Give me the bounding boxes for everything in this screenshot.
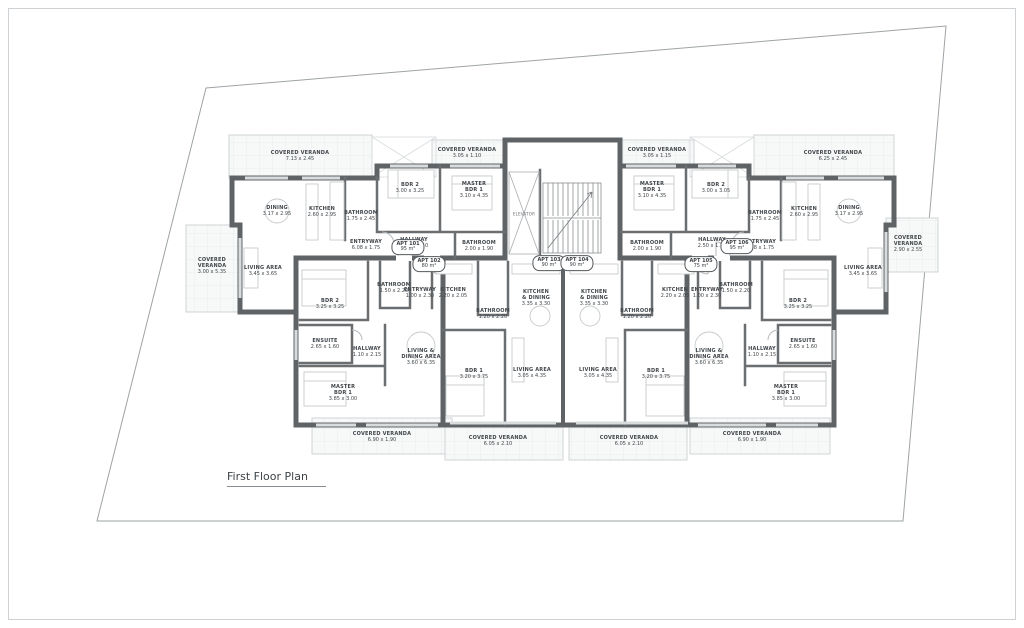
room-label: KITCHEN2.20 x 2.05 (661, 287, 689, 299)
room-label: MASTER BDR 13.10 x 4.35 (460, 181, 488, 199)
room-label: COVERED VERANDA6.05 x 2.10 (469, 435, 527, 447)
room-label: COVERED VERANDA6.90 x 1.90 (353, 431, 411, 443)
room-label: COVERED VERANDA7.13 x 2.45 (271, 150, 329, 162)
room-label: KITCHEN2.60 x 2.95 (790, 206, 818, 218)
room-label: LIVING AREA3.05 x 4.35 (579, 367, 617, 379)
apartment-badge: APT 10575 m² (684, 256, 717, 272)
room-label: LIVING & DINING AREA3.60 x 6.35 (689, 348, 728, 366)
room-label: BATHROOM2.00 x 1.90 (630, 240, 664, 252)
room-label: COVERED VERANDA3.05 x 1.10 (438, 147, 496, 159)
room-label: BATHROOM2.00 x 1.90 (462, 240, 496, 252)
room-label: LIVING AREA3.45 x 3.65 (844, 265, 882, 277)
room-label: BDR 13.20 x 3.75 (460, 368, 488, 380)
labels-layer: COVERED VERANDA7.13 x 2.45DINING3.17 x 2… (0, 0, 1024, 628)
room-label: COVERED VERANDA6.90 x 1.90 (723, 431, 781, 443)
room-label: COVERED VERANDA6.25 x 2.45 (804, 150, 862, 162)
room-label: COVERED VERANDA6.05 x 2.10 (600, 435, 658, 447)
room-label: COVERED VERANDA3.05 x 1.15 (628, 147, 686, 159)
room-label: COVERED VERANDA3.00 x 5.35 (198, 257, 227, 275)
room-label: ENTRYWAY6.08 x 1.75 (350, 239, 382, 251)
room-label: COVERED VERANDA2.90 x 2.55 (894, 235, 923, 253)
room-label: KITCHEN2.20 x 2.05 (439, 287, 467, 299)
room-label: BATHROOM1.75 x 2.45 (344, 210, 378, 222)
room-label: ENSUITE2.65 x 1.60 (789, 338, 817, 350)
room-label: DINING3.17 x 2.95 (835, 205, 863, 217)
room-label: BDR 13.20 x 3.75 (642, 368, 670, 380)
room-label: BATHROOM1.50 x 2.20 (377, 282, 411, 294)
room-label: DINING3.17 x 2.95 (263, 205, 291, 217)
drawing-sheet: COVERED VERANDA7.13 x 2.45DINING3.17 x 2… (0, 0, 1024, 628)
room-label: BATHROOM1.75 x 2.45 (748, 210, 782, 222)
room-label: BDR 23.25 x 3.25 (784, 298, 812, 310)
apartment-badge: APT 10280 m² (412, 256, 445, 272)
room-label: ENTRYWAY1.00 x 2.30 (404, 287, 436, 299)
room-label: LIVING AREA3.45 x 3.65 (244, 265, 282, 277)
room-label: MASTER BDR 13.85 x 3.00 (329, 384, 357, 402)
elevator-label: ELEVATOR (513, 212, 535, 217)
room-label: BATHROOM1.50 x 2.20 (719, 282, 753, 294)
room-label: LIVING AREA3.05 x 4.35 (513, 367, 551, 379)
room-label: HALLWAY1.10 x 2.15 (748, 346, 776, 358)
room-label: BDR 23.00 x 3.25 (396, 182, 424, 194)
room-label: MASTER BDR 13.10 x 4.35 (638, 181, 666, 199)
room-label: HALLWAY1.10 x 2.15 (353, 346, 381, 358)
room-label: ENSUITE2.65 x 1.60 (311, 338, 339, 350)
room-label: BDR 23.00 x 3.05 (702, 182, 730, 194)
room-label: KITCHEN & DINING3.35 x 3.30 (522, 289, 550, 307)
apartment-badge: APT 10490 m² (560, 255, 593, 271)
room-label: BDR 23.25 x 3.25 (316, 298, 344, 310)
room-label: BATHROOM1.20 x 2.20 (476, 308, 510, 320)
plan-title: First Floor Plan (227, 470, 326, 487)
apartment-badge: APT 10695 m² (720, 238, 753, 254)
room-label: KITCHEN2.60 x 2.95 (308, 206, 336, 218)
room-label: ENTRYWAY1.00 x 2.30 (691, 287, 723, 299)
room-label: LIVING & DINING AREA3.60 x 6.35 (401, 348, 440, 366)
room-label: KITCHEN & DINING3.35 x 3.30 (580, 289, 608, 307)
room-label: BATHROOM1.20 x 2.20 (620, 308, 654, 320)
room-label: MASTER BDR 13.85 x 3.00 (772, 384, 800, 402)
apartment-badge: APT 10195 m² (391, 239, 424, 255)
